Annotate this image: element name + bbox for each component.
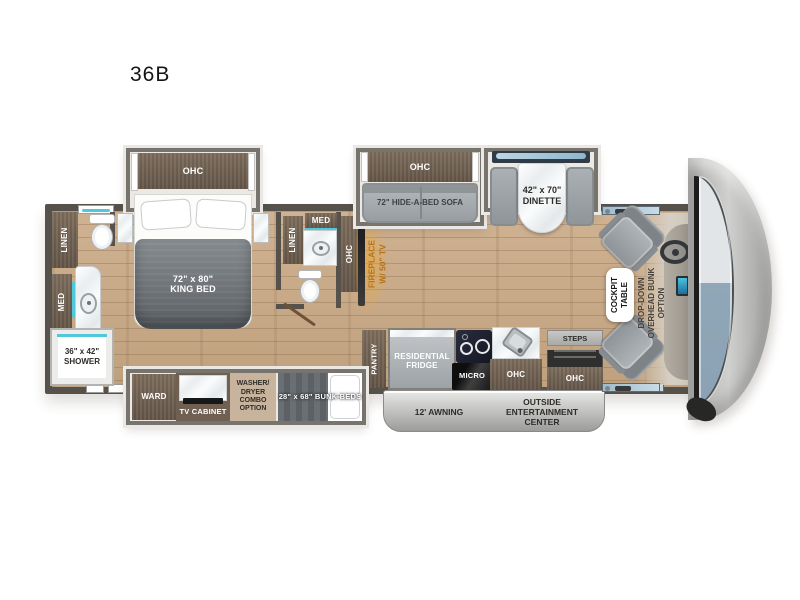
washer-label-line4: OPTION (240, 405, 267, 413)
bunk-beds: 28" x 68" BUNK BEDS (278, 373, 362, 421)
tv-cabinet: TV CABINET (176, 373, 230, 421)
bunk-option-line1: DROP-DOWN (637, 268, 647, 339)
sofa-ohc: OHC (368, 152, 472, 182)
mid-med-label: MED (312, 216, 330, 225)
steps-label: STEPS (563, 334, 588, 343)
bedroom-ohc-label: OHC (183, 166, 204, 176)
kitchen-ohc: OHC (490, 359, 542, 390)
model-title: 36B (130, 63, 170, 87)
washer-label-line3: COMBO (240, 397, 267, 405)
rear-med-label: MED (57, 293, 67, 311)
micro-label: MICRO (459, 372, 485, 381)
fridge-label-line1: RESIDENTIAL (394, 352, 450, 361)
cockpit-table-label-line2: TABLE (620, 277, 630, 313)
fireplace-label-line2: W/ 50" TV (377, 240, 388, 288)
cockpit-table: COCKPIT TABLE (606, 268, 634, 322)
microwave: MICRO (452, 363, 492, 390)
king-bed-pillow-right (195, 198, 247, 230)
dinette-label: 42" x 70" DINETTE (506, 184, 578, 208)
washer-label-line1: WASHER/ (237, 380, 270, 388)
shower-name-label: SHOWER (64, 357, 100, 367)
washer-label-line2: DRYER (241, 389, 265, 397)
awning-banner: 12' AWNING OUTSIDE ENTERTAINMENT CENTER (383, 390, 605, 432)
kitchen-sink (501, 326, 534, 358)
fireplace-label: FIREPLACE W/ 50" TV (362, 214, 392, 314)
pantry-label: PANTRY (369, 343, 378, 374)
rear-linen-label: LINEN (60, 228, 70, 253)
outside-entertainment-line1: OUTSIDE (523, 397, 561, 407)
king-bed-blanket: 72" x 80" KING BED (135, 239, 251, 329)
mid-linen-cabinet: LINEN (283, 216, 303, 264)
entry-ohc: OHC (547, 367, 603, 391)
kitchen-sink-counter (492, 327, 540, 359)
mid-toilet (297, 270, 323, 304)
sofa-label: 72" HIDE-A-BED SOFA (377, 198, 463, 208)
rear-med-cabinet: MED (52, 274, 72, 330)
rear-bath-window (78, 205, 114, 214)
dinette-window (492, 151, 590, 163)
shower: 36" x 42" SHOWER (50, 328, 114, 386)
mid-vanity (303, 230, 337, 266)
ward-label: WARD (141, 392, 166, 401)
kitchen-ohc-label: OHC (507, 370, 525, 379)
bedroom-slide-rail-right (248, 153, 255, 191)
rear-linen-cabinet: LINEN (52, 212, 78, 268)
rear-toilet (88, 214, 116, 252)
sofa-slide-rail-right (472, 152, 479, 182)
cooktop (456, 330, 492, 363)
outside-entertainment-line2: ENTERTAINMENT (506, 407, 578, 417)
sofa-slide-rail-left (361, 152, 368, 182)
entertainment-ohc-label: OHC (345, 245, 355, 263)
hide-a-bed-sofa: 72" HIDE-A-BED SOFA (362, 183, 478, 223)
bedroom-slide-rail-left (131, 153, 138, 191)
floorplan-canvas: 36B LINEN MED 36" x 42" SHOWER OHC (0, 0, 800, 600)
shower-size-label: 36" x 42" (65, 347, 99, 357)
king-bed-size-label: 72" x 80" (173, 274, 213, 284)
wardrobe: WARD (132, 374, 176, 420)
bunk-option-line2: OVERHEAD BUNK (647, 268, 657, 339)
outside-entertainment-line3: CENTER (525, 417, 560, 427)
mid-bath-wall-left (276, 212, 281, 290)
residential-fridge: RESIDENTIAL FRIDGE (388, 328, 456, 390)
awning-label: 12' AWNING (415, 407, 463, 417)
entry-ohc-label: OHC (566, 374, 584, 383)
king-bed-name-label: KING BED (170, 284, 216, 294)
mid-med-cabinet: MED (305, 213, 337, 228)
mid-linen-label: LINEN (288, 228, 298, 253)
bunk-beds-label: 28" x 68" BUNK BEDS (279, 393, 362, 402)
nightstand-left (117, 213, 133, 243)
cockpit-table-label-line1: COCKPIT (610, 277, 620, 313)
fireplace-label-line1: FIREPLACE (366, 240, 377, 288)
bunk-option-line3: OPTION (657, 268, 667, 339)
overhead-bunk-option-label: DROP-DOWN OVERHEAD BUNK OPTION (634, 250, 670, 356)
nightstand-right (253, 213, 269, 243)
king-bed: 72" x 80" KING BED (134, 194, 252, 328)
king-bed-pillow-left (140, 198, 192, 230)
sofa-ohc-label: OHC (410, 162, 431, 172)
fridge-label-line2: FRIDGE (406, 361, 437, 370)
tv-cabinet-label: TV CABINET (180, 408, 227, 417)
dinette-name-label: DINETTE (523, 196, 562, 207)
dinette-size-label: 42" x 70" (523, 185, 562, 196)
bedroom-ohc: OHC (138, 153, 248, 189)
